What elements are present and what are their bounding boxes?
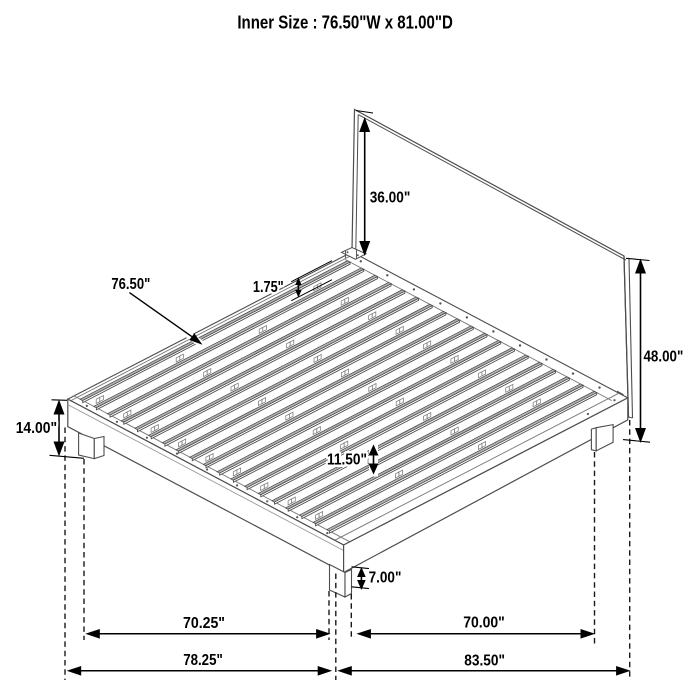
svg-text:83.50": 83.50" (464, 653, 505, 670)
svg-text:70.00": 70.00" (463, 614, 505, 631)
svg-text:7.00": 7.00" (369, 569, 402, 586)
svg-text:36.00": 36.00" (370, 189, 411, 206)
svg-text:70.25": 70.25" (183, 615, 225, 632)
svg-text:14.00": 14.00" (16, 420, 57, 437)
svg-text:76.50": 76.50" (111, 276, 150, 293)
svg-text:Inner Size : 76.50"W x 81.00"D: Inner Size : 76.50"W x 81.00"D (237, 12, 453, 32)
svg-text:48.00": 48.00" (644, 349, 684, 366)
svg-text:11.50": 11.50" (327, 452, 367, 469)
svg-text:78.25": 78.25" (183, 652, 223, 669)
svg-text:1.75": 1.75" (253, 279, 284, 296)
